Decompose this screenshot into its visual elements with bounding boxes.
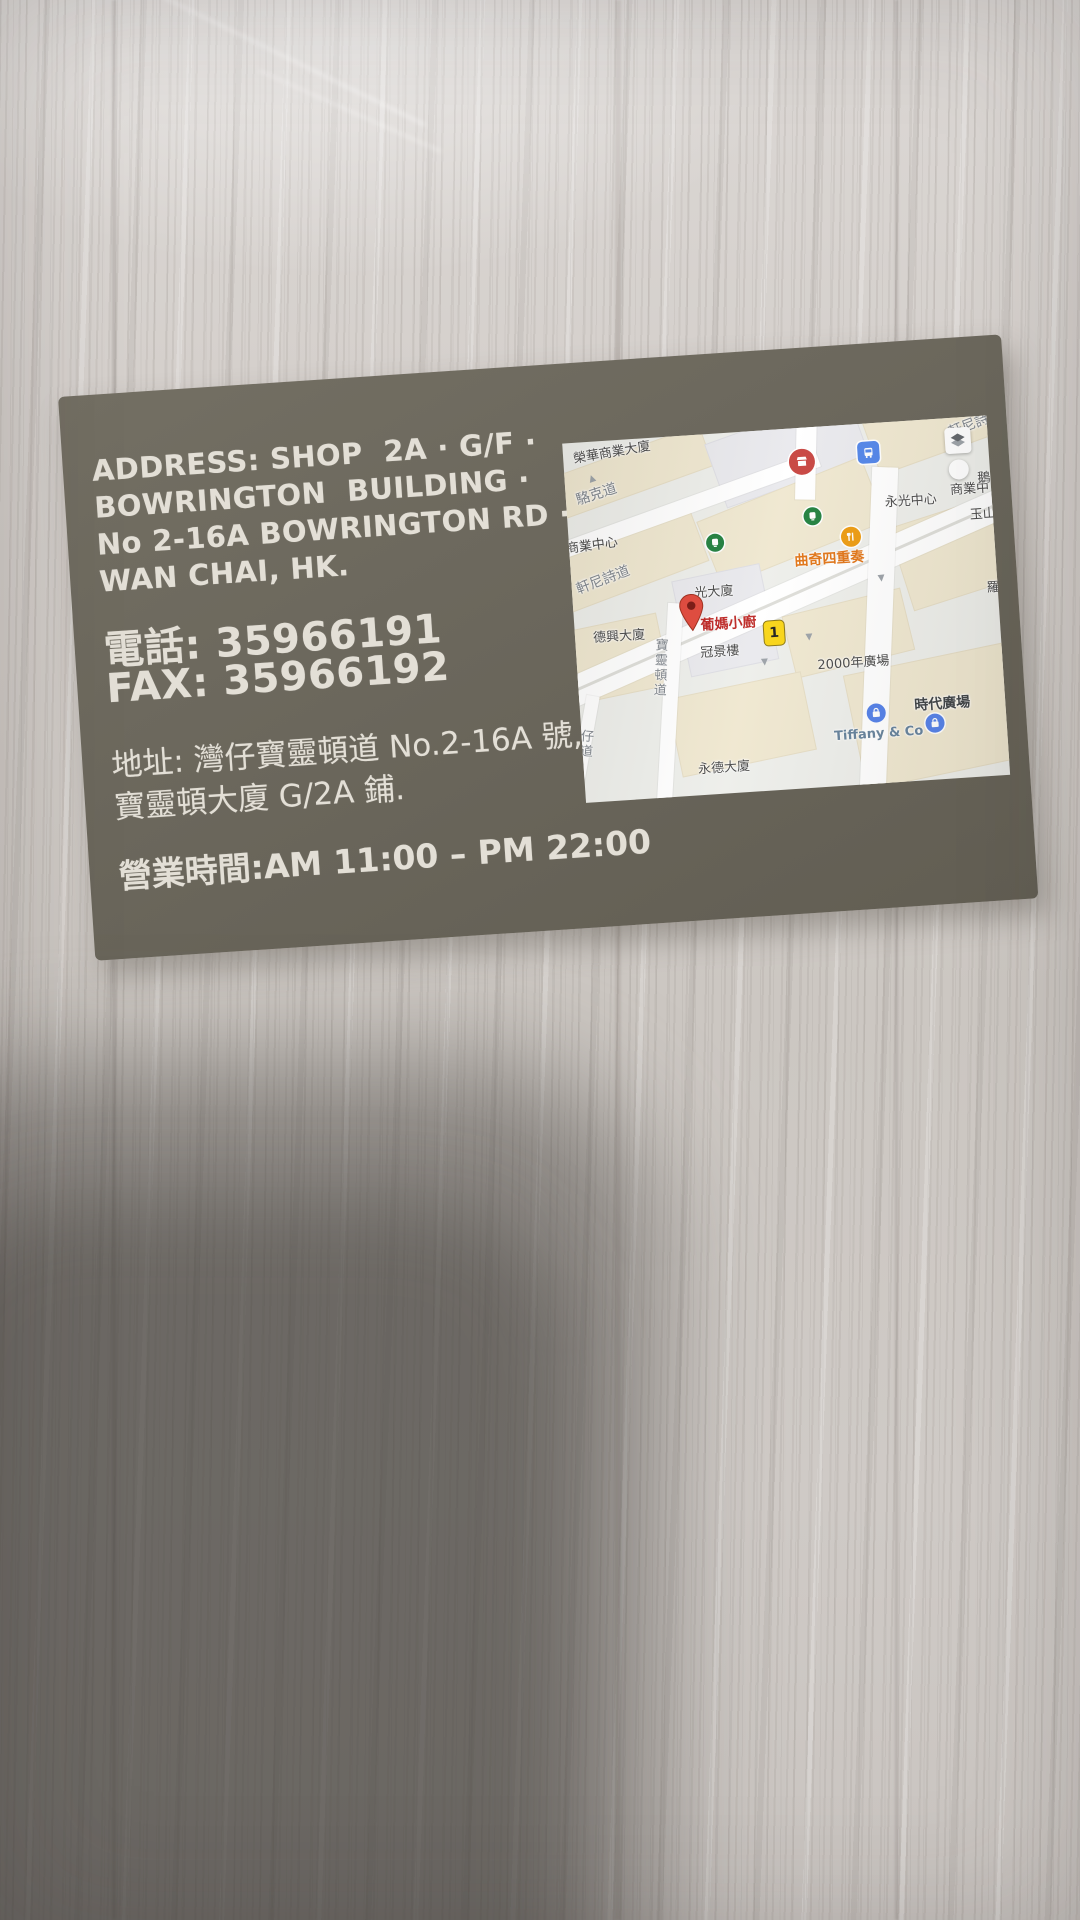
opening-hours: 營業時間:AM 11:00 – PM 22:00 [117,815,652,898]
map-label-building-partial: 玉山 [969,507,996,523]
map-label-building: 永德大廈 [698,760,751,778]
route-1-shield: 1 [762,619,786,646]
one-way-arrow-icon: ▲ [761,657,769,667]
layers-icon [944,427,972,455]
one-way-arrow-icon: ▲ [877,573,885,584]
map-label-building-partial: 羅 [986,581,1000,596]
map-label-building: 冠景樓 [700,644,740,661]
one-way-arrow-icon: ▲ [805,632,813,642]
restaurant-icon [840,526,861,547]
business-card: ADDRESS: SHOP 2A · G/F · BOWRINGTON BUIL… [58,334,1038,960]
map-image: ▲ ▲ ▲ ▲ 榮華商業大廈 駱克道 區商業中心 軒尼詩道 軒尼詩 商業中 永光… [562,416,1010,803]
fax-label: FAX: [105,660,210,713]
route-number: 1 [769,625,780,642]
address-en-block: ADDRESS: SHOP 2A · G/F · BOWRINGTON BUIL… [91,421,575,600]
locate-icon [948,459,969,480]
photo-scene: ADDRESS: SHOP 2A · G/F · BOWRINGTON BUIL… [0,0,1080,1920]
map-label-building-partial: 鵝 [977,471,991,486]
map-label-building: 永光中心 [884,493,937,511]
bus-stop-icon [857,441,880,464]
photographer-shadow [0,1200,570,1920]
map-pin-icon [677,593,705,633]
